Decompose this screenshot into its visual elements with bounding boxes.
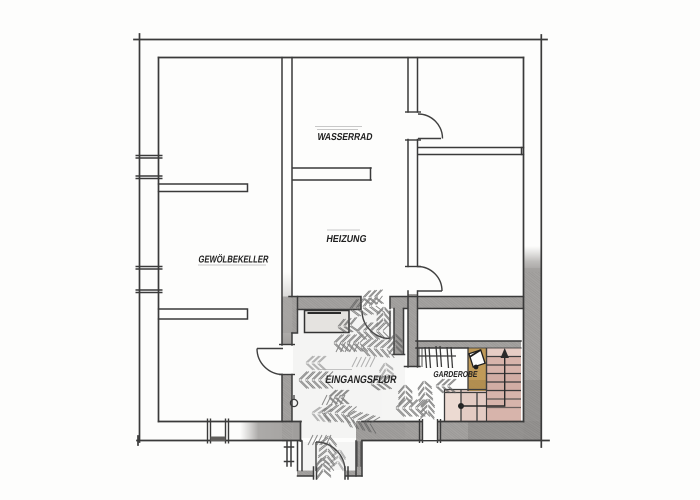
svg-text:GARDEROBE: GARDEROBE bbox=[433, 369, 479, 379]
svg-text:HEIZUNG: HEIZUNG bbox=[326, 234, 368, 245]
svg-text:GEWÖLBEKELLER: GEWÖLBEKELLER bbox=[198, 253, 271, 266]
svg-text:WASSERRAD: WASSERRAD bbox=[317, 132, 374, 143]
